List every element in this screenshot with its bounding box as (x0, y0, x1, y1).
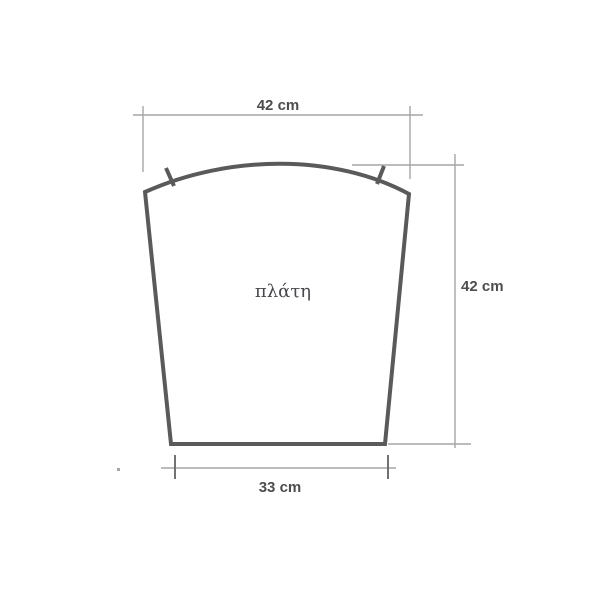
pattern-piece-outline (145, 164, 409, 444)
stray-dot (117, 468, 120, 471)
dimension-bottom-width: 33 cm (161, 455, 396, 496)
dimension-right-label: 42 cm (461, 278, 504, 295)
pattern-diagram-svg: 42 cm 42 cm 33 cm πλάτη (0, 0, 600, 600)
piece-label: πλάτη (255, 281, 311, 302)
dimension-top-label: 42 cm (257, 97, 300, 114)
dimension-bottom-label: 33 cm (259, 479, 302, 496)
pattern-diagram: 42 cm 42 cm 33 cm πλάτη (0, 0, 600, 600)
